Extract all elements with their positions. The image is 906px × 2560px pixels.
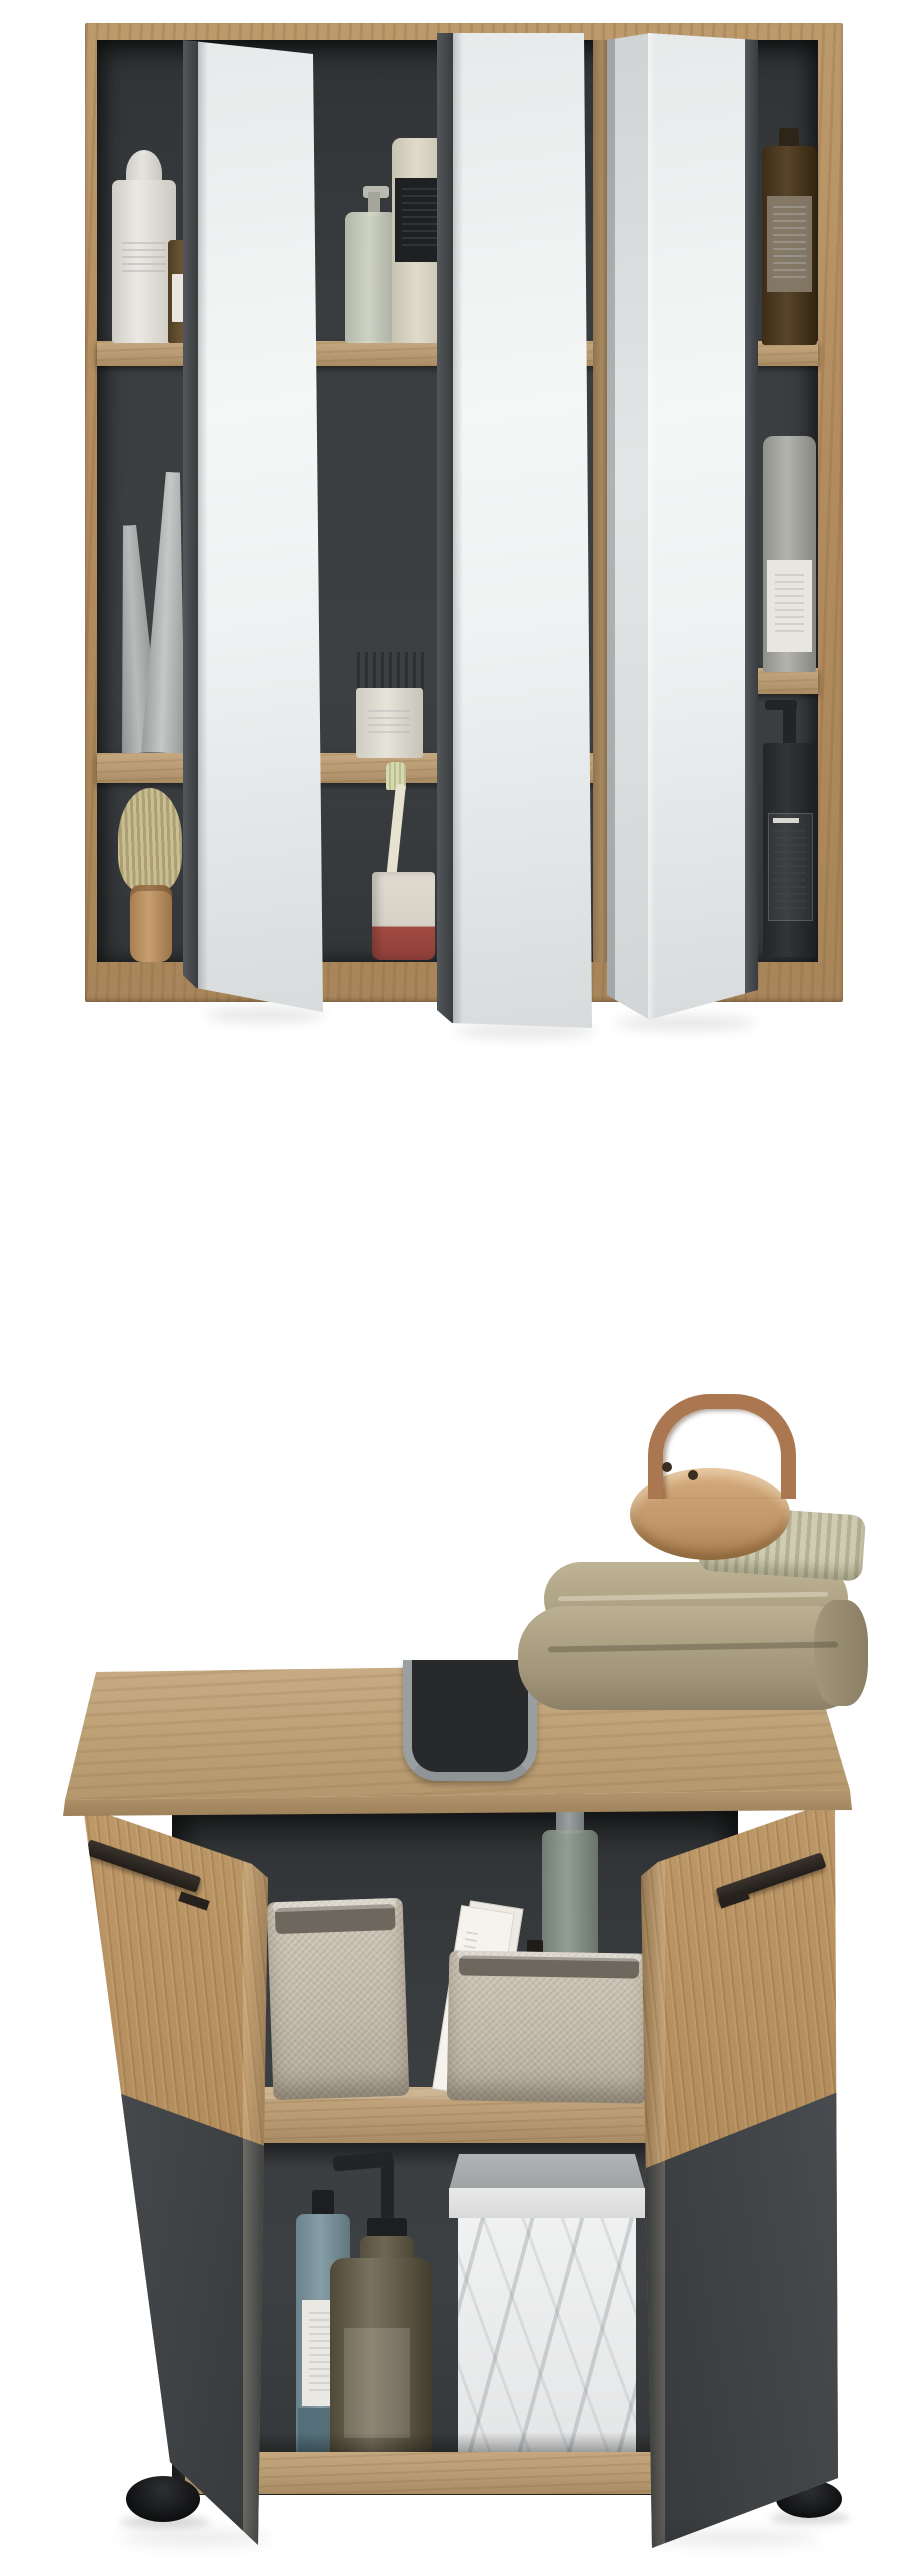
mirror-door-right-fold-panel	[607, 33, 650, 1020]
vanity-floor-board	[185, 2452, 729, 2494]
door-shadow	[205, 1008, 325, 1022]
black-bottle-pump-stem	[783, 704, 796, 748]
strap-rivet	[662, 1462, 672, 1472]
vanity-door-right	[641, 1798, 838, 2552]
dark-jar-lid	[352, 652, 427, 692]
vanity-cabinet	[0, 1380, 906, 2560]
brush-strap	[648, 1394, 796, 1499]
amber-apothecary-bottle	[762, 146, 817, 345]
foot-shadow	[120, 2516, 210, 2528]
amber-soap-dispenser	[330, 2152, 432, 2468]
mirror-door-right	[648, 33, 758, 1020]
door-shadow	[615, 1016, 755, 1030]
shaving-brush-bristles	[118, 788, 182, 892]
toothbrush-handle	[386, 784, 406, 881]
dark-jar-body	[356, 688, 423, 758]
siphon-cutout	[403, 1660, 537, 1781]
white-pump-bottle-body	[112, 180, 176, 343]
center-divider	[593, 40, 609, 962]
strap-rivet	[688, 1470, 698, 1480]
mirror-door-center	[437, 30, 592, 1028]
grey-label-bottle	[763, 436, 816, 672]
foot-shadow	[770, 2512, 850, 2524]
door-shadow	[120, 2530, 270, 2546]
door-shadow	[650, 2530, 820, 2546]
product-photo-canvas	[0, 0, 906, 2560]
shaving-brush-handle	[130, 885, 172, 962]
toothbrush-cup	[372, 872, 435, 960]
glass-pump-bottle	[345, 212, 397, 343]
fabric-basket-right	[447, 1950, 650, 2103]
floor-shadow	[185, 2432, 729, 2454]
vanity-door-left	[83, 1800, 270, 2552]
mirror-door-left	[183, 40, 323, 1012]
black-pump-bottle	[763, 743, 816, 957]
fabric-basket-left	[267, 1898, 410, 2101]
massage-brush	[625, 1388, 870, 1588]
marble-box	[449, 2154, 645, 2468]
